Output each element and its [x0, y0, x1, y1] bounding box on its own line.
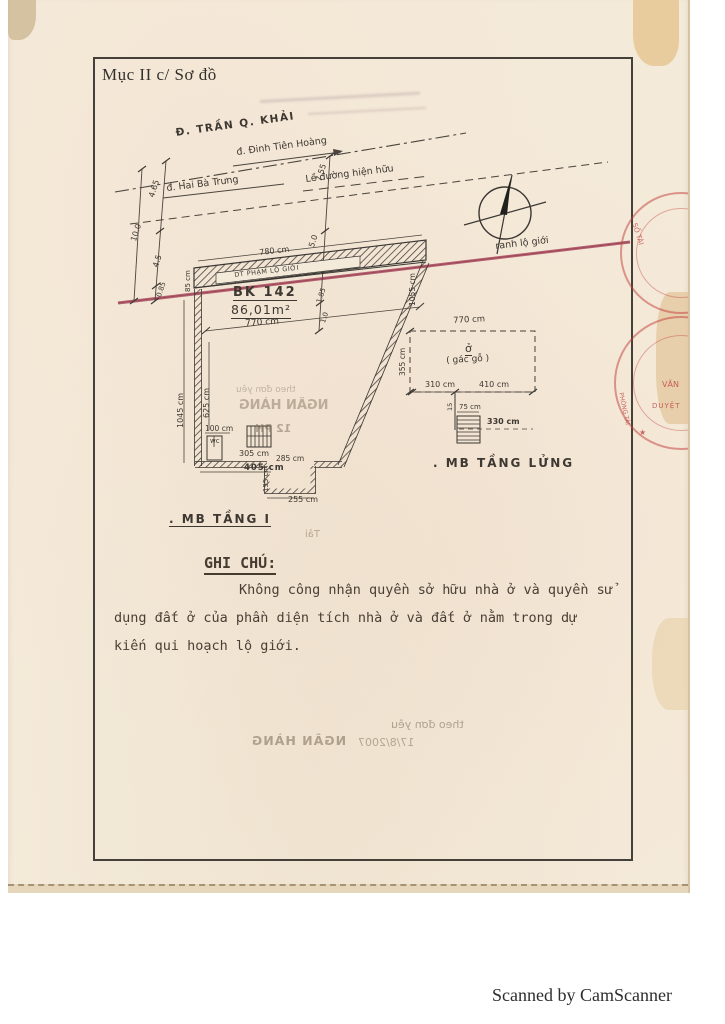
paper-patch-topright: [633, 0, 679, 66]
mezz-dim-330: 330 cm: [487, 418, 520, 426]
paper-edge-shadow: [8, 884, 688, 893]
paper-corner-patch-topleft: [8, 0, 36, 40]
floor1-caption: . MB TẦNG I: [169, 513, 271, 527]
scanned-paper: Mục II c/ Sơ đồ: [8, 0, 690, 893]
bleed-text: theo đơn yêu: [236, 386, 296, 395]
plot-right-depth: 1055 cm: [409, 273, 417, 306]
bleed-text: 17/8/2007: [358, 737, 414, 748]
red-stamp-text: VĂN: [662, 380, 679, 389]
mezz-dim-75: 75 cm: [459, 404, 481, 411]
note-line-2: dụng đất ở của phần diện tích nhà ở và đ…: [114, 612, 577, 626]
paper-patch-right-low: [652, 618, 690, 710]
mezz-dim-15: 15: [447, 403, 454, 411]
section-title: Mục II c/ Sơ đồ: [102, 66, 217, 83]
mezz-dim-310: 310 cm: [425, 381, 455, 389]
plot-left-depth: 1045 cm: [177, 393, 185, 428]
annex-top-label: 285 cm: [276, 455, 304, 463]
bleed-text: 12 PH: [255, 423, 291, 434]
mezzanine-caption: . MB TẦNG LỬNG: [433, 457, 574, 469]
red-stamp-inner-ring: [636, 208, 690, 298]
note-heading: GHI CHÚ:: [204, 556, 276, 575]
plot-left-inner: 625 cm: [203, 388, 211, 418]
annex-height-label: 155 cm: [263, 466, 270, 492]
plot-bottom-inner: 305 cm: [239, 450, 269, 458]
note-line-1: Không công nhận quyền sở hữu nhà ở và qu…: [239, 584, 613, 598]
bleed-text: NGÂN HÀNG: [251, 735, 346, 748]
parcel-id: BK 142: [233, 286, 297, 301]
room-width-label: 100 cm: [205, 425, 233, 433]
parcel-area: 86,01m²: [231, 304, 291, 319]
bleed-text: NGÂN HÀNG: [239, 399, 329, 412]
mezz-dim-410: 410 cm: [479, 381, 509, 389]
bleed-text: Tải: [305, 530, 320, 540]
annex-bottom-label: 255 cm: [288, 496, 318, 504]
star-icon: ★: [639, 428, 646, 437]
wc-label: wc: [210, 438, 220, 445]
mezz-width-label: 770 cm: [453, 315, 485, 325]
camscanner-watermark: Scanned by CamScanner: [492, 986, 672, 1004]
red-stamp-text: DUYỆT: [652, 402, 681, 410]
mezz-height-label: 355 cm: [399, 348, 407, 376]
strip-height-label: 85 cm: [185, 270, 192, 292]
bleed-text: theo đơn yêu: [391, 719, 464, 730]
note-line-3: kiến qui hoạch lộ giới.: [114, 640, 301, 654]
